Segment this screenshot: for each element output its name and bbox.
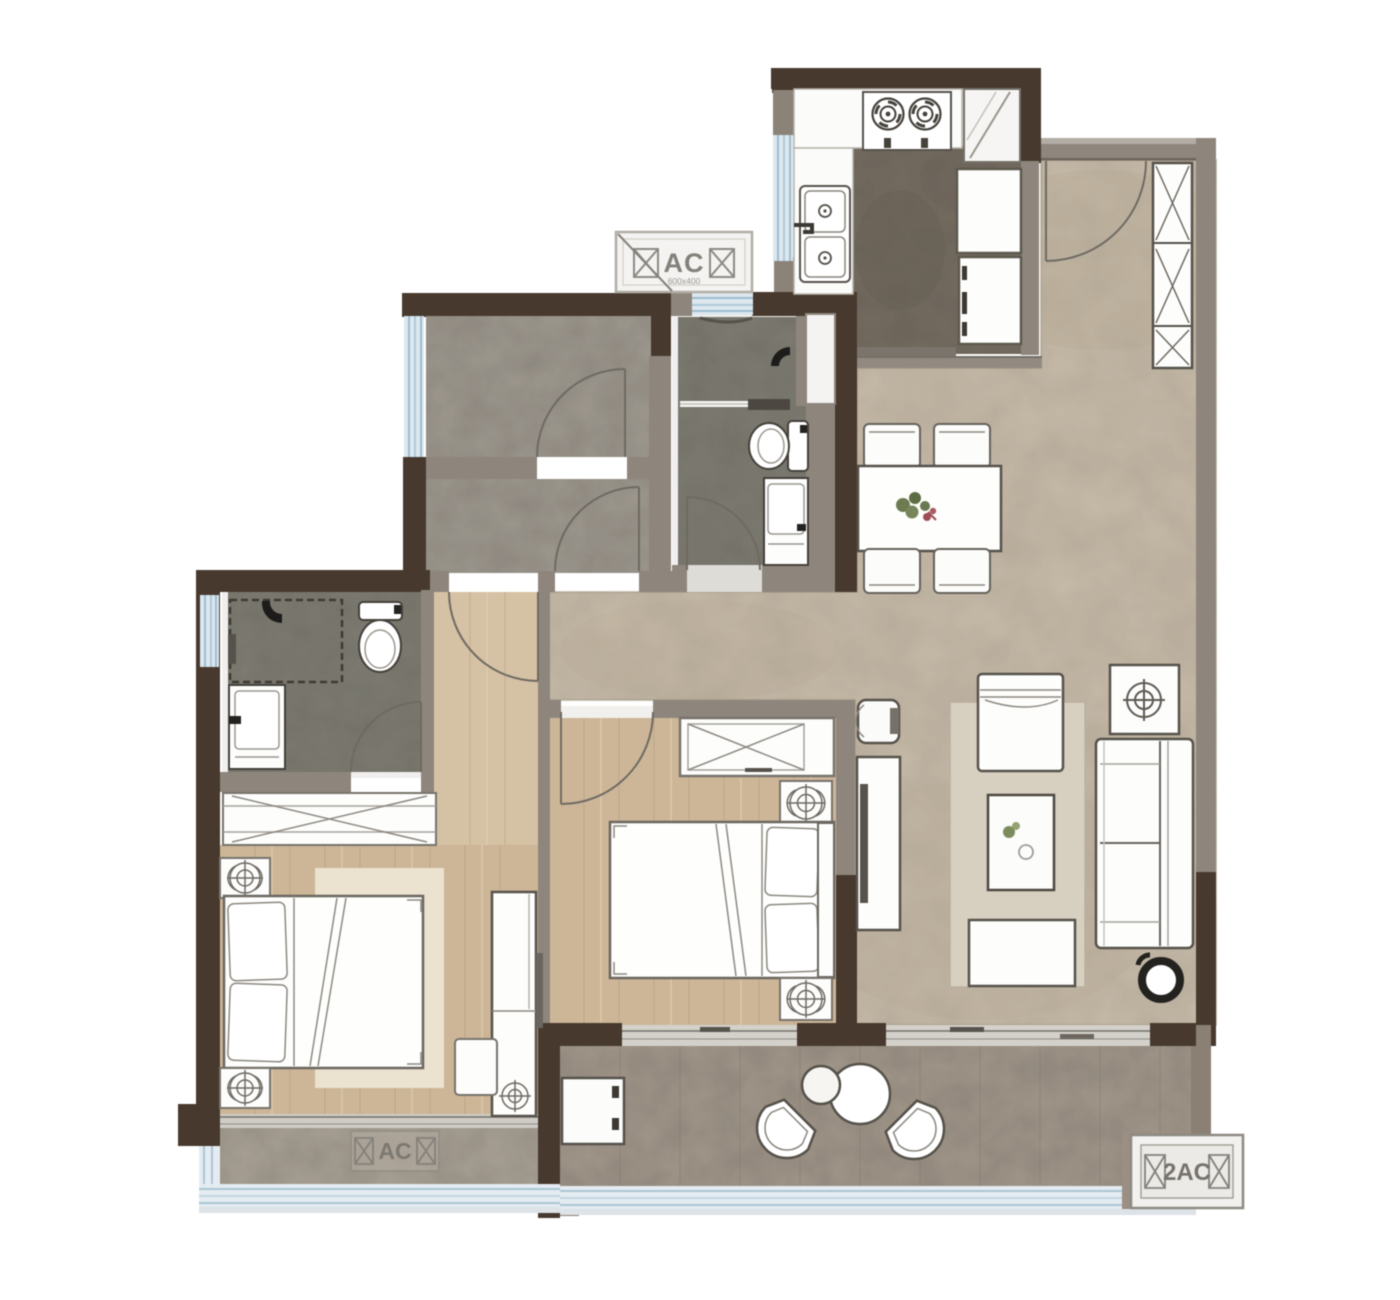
svg-text:AC: AC — [664, 248, 705, 278]
svg-text:2AC: 2AC — [1163, 1159, 1211, 1186]
svg-text:600x400: 600x400 — [668, 276, 701, 286]
svg-text:AC: AC — [378, 1138, 411, 1164]
